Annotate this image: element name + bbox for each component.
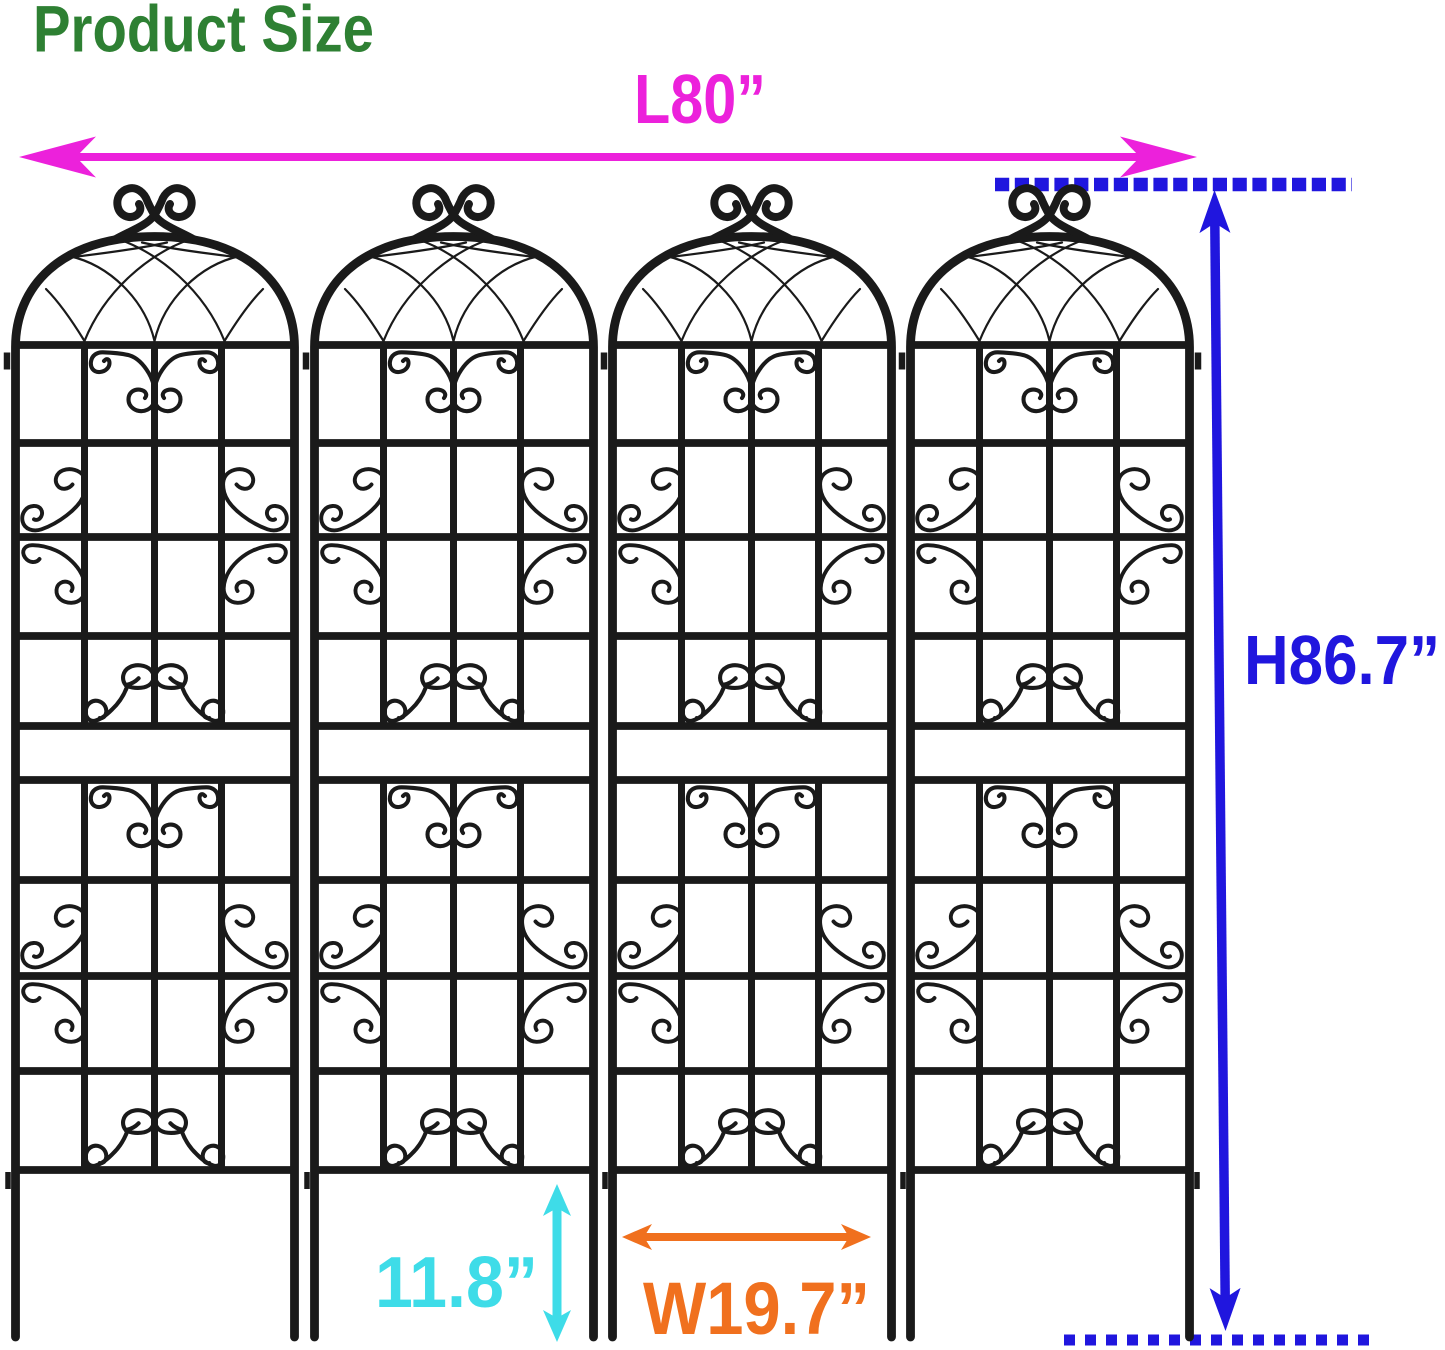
svg-text:W19.7”: W19.7”	[643, 1267, 870, 1350]
svg-text:L80”: L80”	[634, 60, 766, 138]
svg-text:11.8”: 11.8”	[375, 1243, 538, 1323]
svg-text:H86.7”: H86.7”	[1244, 621, 1440, 699]
svg-text:Product Size: Product Size	[33, 0, 374, 66]
